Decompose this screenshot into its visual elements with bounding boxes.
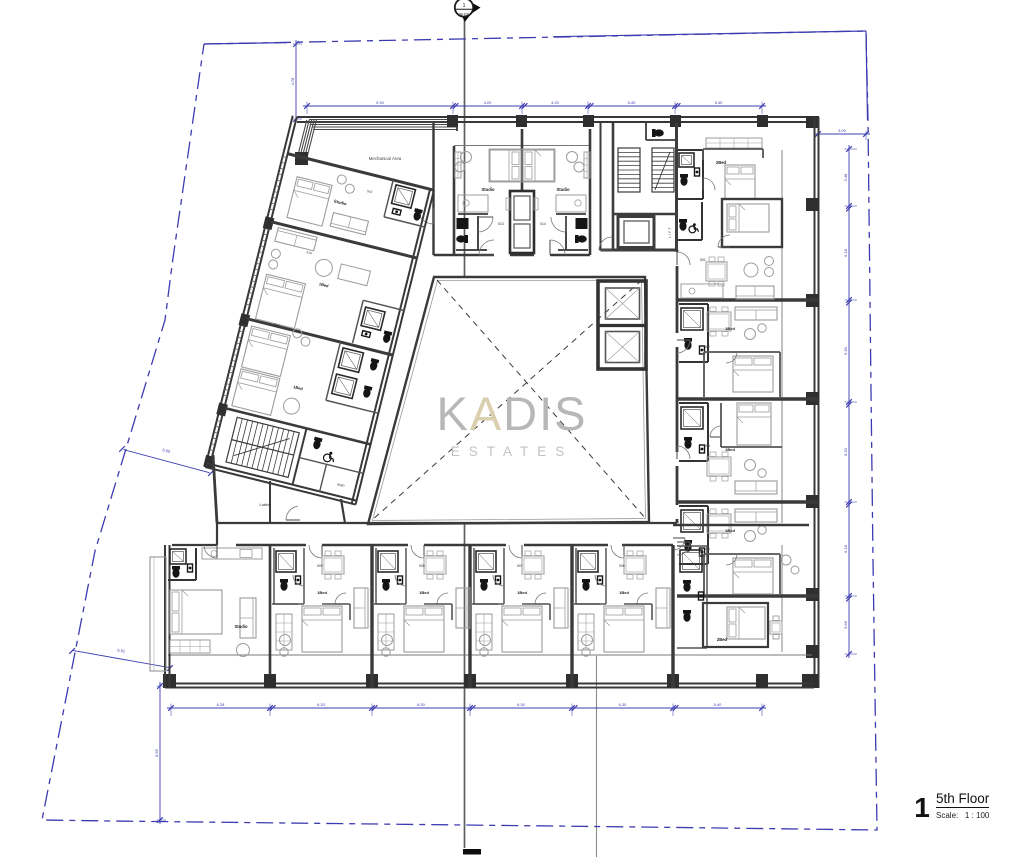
svg-text:9.30: 9.30 — [376, 100, 385, 105]
svg-text:4.78: 4.78 — [290, 77, 295, 86]
svg-text:6.30: 6.30 — [517, 702, 526, 707]
svg-text:5.40: 5.40 — [715, 100, 724, 105]
svg-text:506: 506 — [619, 564, 625, 568]
svg-text:8.65: 8.65 — [154, 748, 159, 757]
svg-text:6.18: 6.18 — [843, 248, 848, 257]
svg-text:509: 509 — [317, 564, 323, 568]
svg-text:514: 514 — [540, 222, 546, 226]
svg-text:08-100: 08-100 — [459, 13, 470, 17]
svg-text:5th Floor: 5th Floor — [936, 791, 990, 806]
svg-text:LIFT: LIFT — [668, 226, 672, 237]
svg-text:6.30: 6.30 — [417, 702, 426, 707]
svg-text:1Bed: 1Bed — [419, 590, 429, 595]
svg-text:1: 1 — [463, 3, 466, 9]
svg-text:1Bed: 1Bed — [725, 447, 735, 452]
svg-text:6.30: 6.30 — [619, 702, 628, 707]
svg-text:Scale: 1 : 100: Scale: 1 : 100 — [936, 811, 990, 820]
svg-text:503: 503 — [704, 444, 710, 448]
svg-text:3.48: 3.48 — [843, 173, 848, 182]
svg-text:6.30: 6.30 — [843, 346, 848, 355]
svg-text:1Bed: 1Bed — [725, 528, 735, 533]
svg-text:1Bed: 1Bed — [317, 590, 327, 595]
svg-text:4.20: 4.20 — [484, 100, 493, 105]
svg-text:3.68: 3.68 — [843, 620, 848, 629]
svg-text:2Bed: 2Bed — [717, 637, 728, 642]
svg-text:4.20: 4.20 — [551, 100, 560, 105]
svg-text:6.30: 6.30 — [843, 447, 848, 456]
svg-text:Lobby: Lobby — [260, 502, 271, 507]
svg-text:1Bed: 1Bed — [725, 326, 735, 331]
svg-text:Mechanical Area: Mechanical Area — [369, 156, 402, 161]
svg-text:Studio: Studio — [481, 187, 494, 192]
svg-text:2Bed: 2Bed — [716, 160, 727, 165]
svg-text:1Bed: 1Bed — [517, 590, 527, 595]
svg-text:508: 508 — [419, 564, 425, 568]
svg-text:5.40: 5.40 — [714, 702, 723, 707]
svg-text:1Bed: 1Bed — [619, 590, 629, 595]
svg-text:6.33: 6.33 — [317, 702, 326, 707]
svg-text:6.18: 6.18 — [843, 544, 848, 553]
svg-text:Studio: Studio — [556, 187, 569, 192]
svg-text:507: 507 — [517, 564, 523, 568]
svg-text:501: 501 — [700, 258, 706, 262]
svg-text:ESTATES: ESTATES — [451, 444, 574, 459]
svg-text:3.00: 3.00 — [838, 128, 847, 133]
svg-text:502: 502 — [704, 345, 710, 349]
svg-text:5.40: 5.40 — [628, 100, 637, 105]
svg-text:KADIS: KADIS — [436, 387, 587, 440]
svg-text:1: 1 — [914, 792, 930, 823]
svg-text:513: 513 — [498, 222, 504, 226]
svg-text:6.28: 6.28 — [217, 702, 226, 707]
svg-text:Studio: Studio — [234, 624, 247, 629]
